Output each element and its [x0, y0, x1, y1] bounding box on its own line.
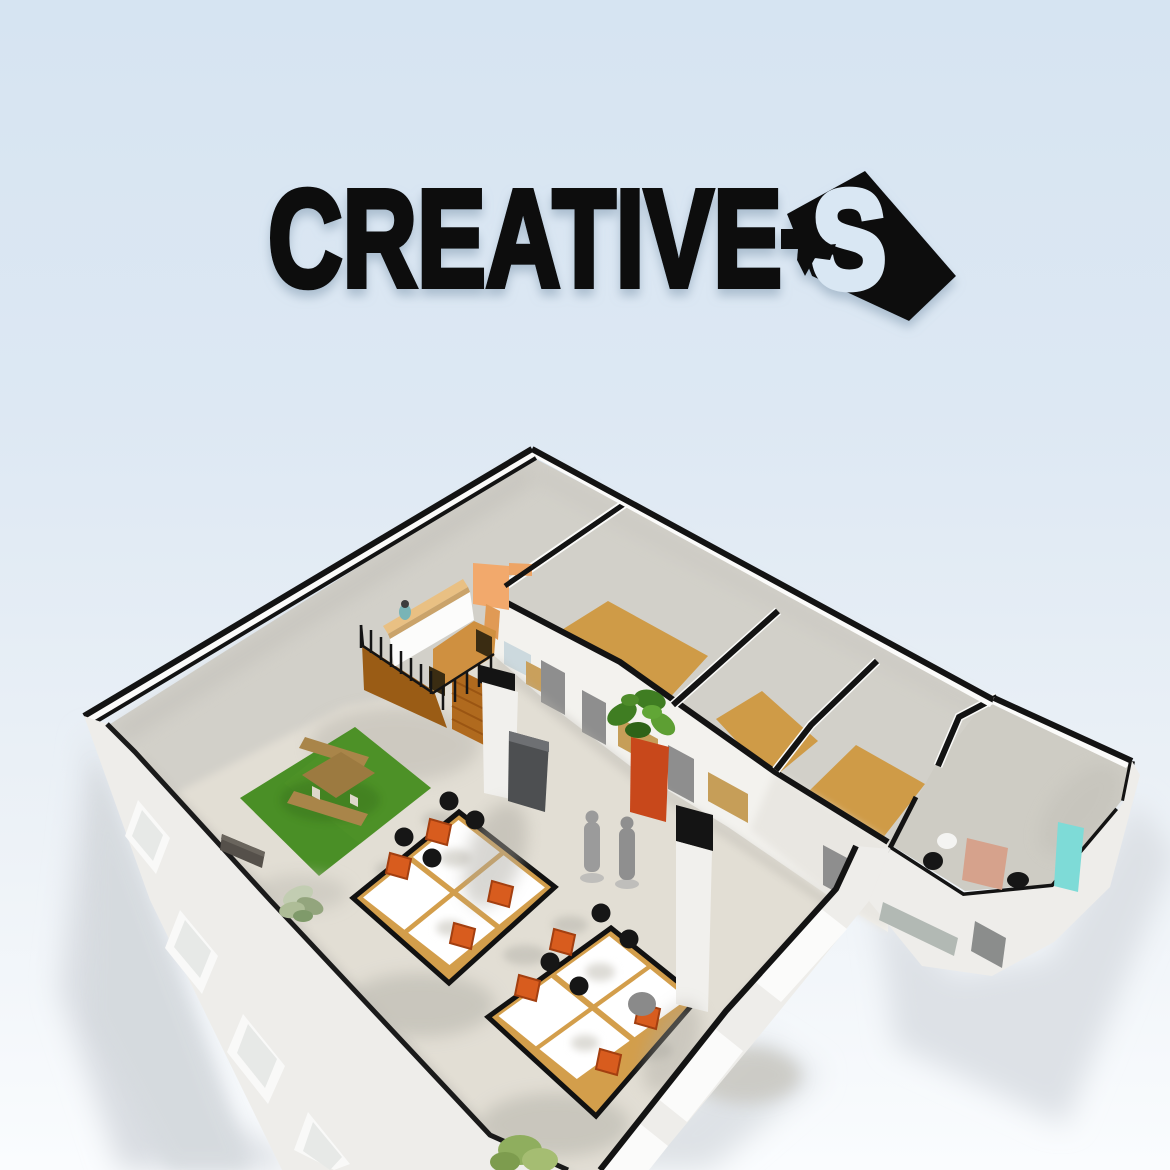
svg-text:CREATIVE: CREATIVE [268, 162, 782, 316]
svg-text:S: S [812, 163, 886, 317]
